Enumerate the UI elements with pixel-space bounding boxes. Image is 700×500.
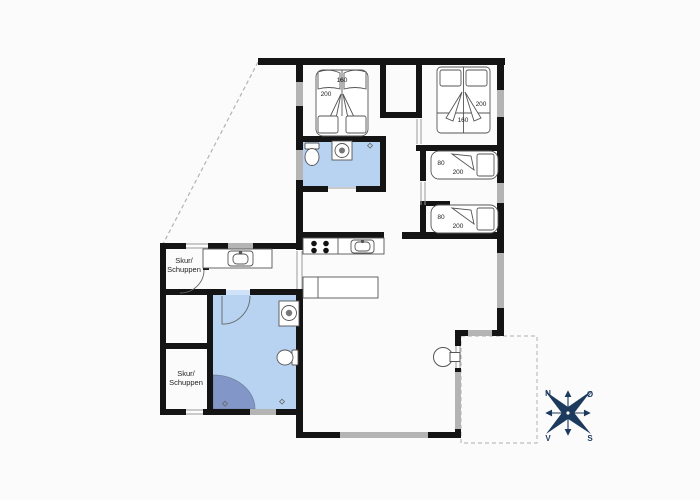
window xyxy=(497,90,504,117)
compass-label-north: N xyxy=(545,389,551,398)
window xyxy=(296,82,303,106)
bed-length-label: 200 xyxy=(453,169,464,176)
kitchen-sink-icon xyxy=(351,240,374,253)
shed-top-label-line1: Skur/ xyxy=(175,256,193,265)
shed-top-label-line2: Schuppen xyxy=(167,265,201,274)
window xyxy=(468,330,492,336)
window xyxy=(340,432,428,438)
compass-label-west: V xyxy=(545,434,551,443)
bed-length-label: 200 xyxy=(476,101,487,108)
bed-width-label: 160 xyxy=(458,117,469,124)
entry-sink-icon xyxy=(228,251,253,266)
floor-plan: 160 200 200 160 80 200 80 200 xyxy=(0,0,700,500)
bed-width-label: 80 xyxy=(437,160,445,167)
bed-length-label: 200 xyxy=(453,223,464,230)
toilet-icon xyxy=(305,143,319,166)
kitchen-island xyxy=(303,277,378,298)
compass-label-east: Ø xyxy=(587,390,593,399)
bed-length-label: 200 xyxy=(321,91,332,98)
window xyxy=(497,253,504,308)
bed-width-label: 80 xyxy=(437,214,445,221)
washing-machine-icon xyxy=(332,141,352,160)
compass-label-south: S xyxy=(587,434,593,443)
window xyxy=(296,150,303,180)
compass-rose-icon xyxy=(545,391,591,435)
window xyxy=(455,372,461,429)
bed-width-label: 160 xyxy=(337,77,348,84)
washing-machine-icon xyxy=(279,301,299,326)
shed-bottom-label-line1: Skur/ xyxy=(177,369,195,378)
window xyxy=(250,409,276,415)
site-boundary-dashed-line xyxy=(163,62,258,244)
terrace-dashed-outline xyxy=(461,336,537,443)
floor-plan-drawing: 160 200 200 160 80 200 80 200 xyxy=(0,0,700,500)
toilet-icon xyxy=(277,350,298,365)
window xyxy=(497,183,504,203)
window xyxy=(228,243,253,249)
shed-bottom-label-line2: Schuppen xyxy=(169,378,203,387)
